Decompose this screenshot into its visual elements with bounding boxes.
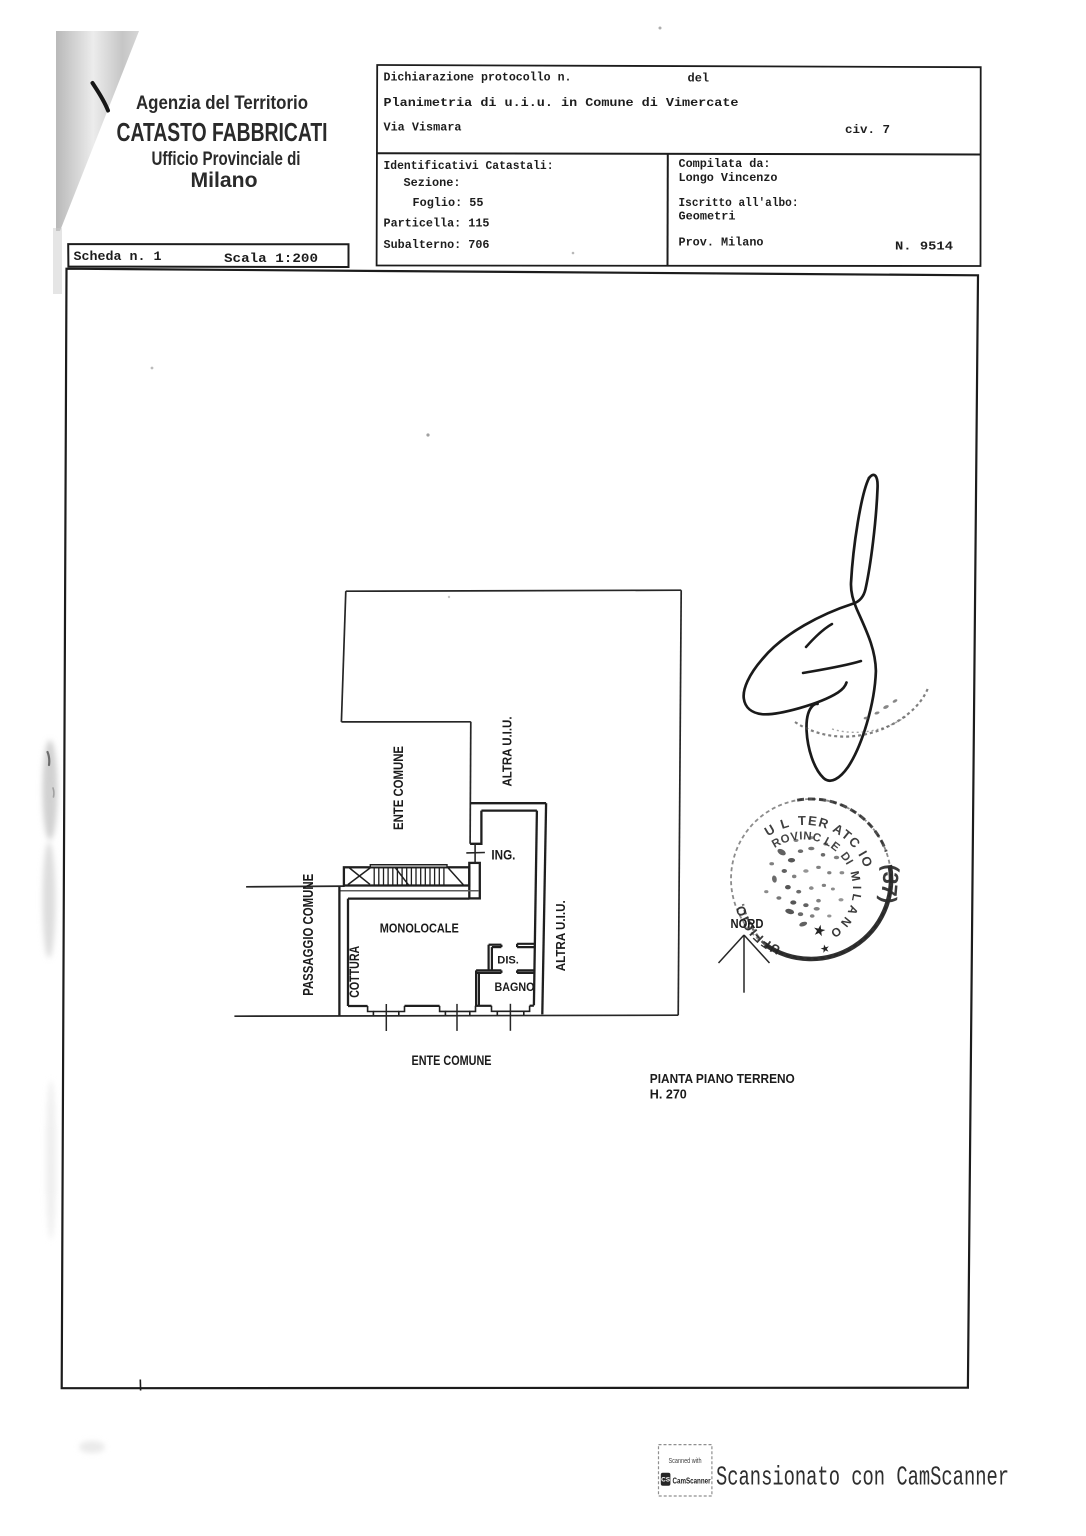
svg-text:N. 9514: N. 9514 bbox=[895, 240, 953, 254]
svg-text:CamScanner: CamScanner bbox=[673, 1476, 712, 1486]
svg-text:ING.: ING. bbox=[491, 846, 515, 862]
svg-text:ALTRA U.I.U.: ALTRA U.I.U. bbox=[553, 900, 568, 971]
svg-text:civ. 7: civ. 7 bbox=[845, 123, 890, 137]
svg-text:MONOLOCALE: MONOLOCALE bbox=[380, 921, 459, 935]
svg-text:COTTURA: COTTURA bbox=[347, 946, 362, 998]
svg-text:DIS.: DIS. bbox=[497, 955, 519, 967]
svg-text:Via Vismara: Via Vismara bbox=[384, 121, 462, 135]
svg-text:PIANTA PIANO TERRENO: PIANTA PIANO TERRENO bbox=[650, 1071, 795, 1086]
svg-text:CS: CS bbox=[661, 1477, 671, 1484]
svg-text:Scala 1:200: Scala 1:200 bbox=[224, 251, 318, 266]
svg-text:Milano: Milano bbox=[191, 169, 258, 192]
svg-text:Agenzia del Territorio: Agenzia del Territorio bbox=[136, 93, 308, 114]
svg-text:PASSAGGIO COMUNE: PASSAGGIO COMUNE bbox=[301, 874, 317, 996]
svg-text:Planimetria di u.i.u. in Comun: Planimetria di u.i.u. in Comune di Vimer… bbox=[384, 96, 739, 110]
svg-text:(37): (37) bbox=[876, 863, 904, 904]
svg-text:ENTE COMUNE: ENTE COMUNE bbox=[412, 1053, 492, 1068]
svg-text:Scansionato con CamScanner: Scansionato con CamScanner bbox=[716, 1463, 1009, 1493]
svg-text:Compilata da:: Compilata da: bbox=[679, 157, 771, 171]
svg-text:ENTE COMUNE: ENTE COMUNE bbox=[390, 746, 406, 830]
svg-text:Geometri: Geometri bbox=[679, 210, 736, 224]
svg-text:Sezione:: Sezione: bbox=[404, 176, 461, 190]
svg-text:ALTRA U.I.U.: ALTRA U.I.U. bbox=[500, 717, 515, 787]
svg-text:Subalterno: 706: Subalterno: 706 bbox=[384, 238, 490, 252]
svg-text:del: del bbox=[688, 72, 710, 86]
svg-text:Foglio: 55: Foglio: 55 bbox=[413, 196, 484, 210]
svg-text:BAGNO: BAGNO bbox=[495, 982, 535, 994]
svg-text:Longo Vincenzo: Longo Vincenzo bbox=[679, 171, 778, 185]
svg-text:Prov. Milano: Prov. Milano bbox=[679, 236, 764, 250]
svg-text:Identificativi Catastali:: Identificativi Catastali: bbox=[384, 159, 554, 173]
svg-text:Ufficio Provinciale di: Ufficio Provinciale di bbox=[152, 149, 301, 170]
svg-text:H. 270: H. 270 bbox=[650, 1087, 687, 1102]
svg-text:Particella: 115: Particella: 115 bbox=[384, 217, 490, 231]
svg-text:Iscritto all'albo:: Iscritto all'albo: bbox=[679, 196, 799, 210]
svg-text:Scheda n. 1: Scheda n. 1 bbox=[74, 249, 162, 264]
svg-text:Scanned with: Scanned with bbox=[669, 1456, 702, 1465]
svg-text:CATASTO FABBRICATI: CATASTO FABBRICATI bbox=[117, 117, 328, 147]
svg-text:Dichiarazione protocollo n.: Dichiarazione protocollo n. bbox=[384, 71, 572, 85]
